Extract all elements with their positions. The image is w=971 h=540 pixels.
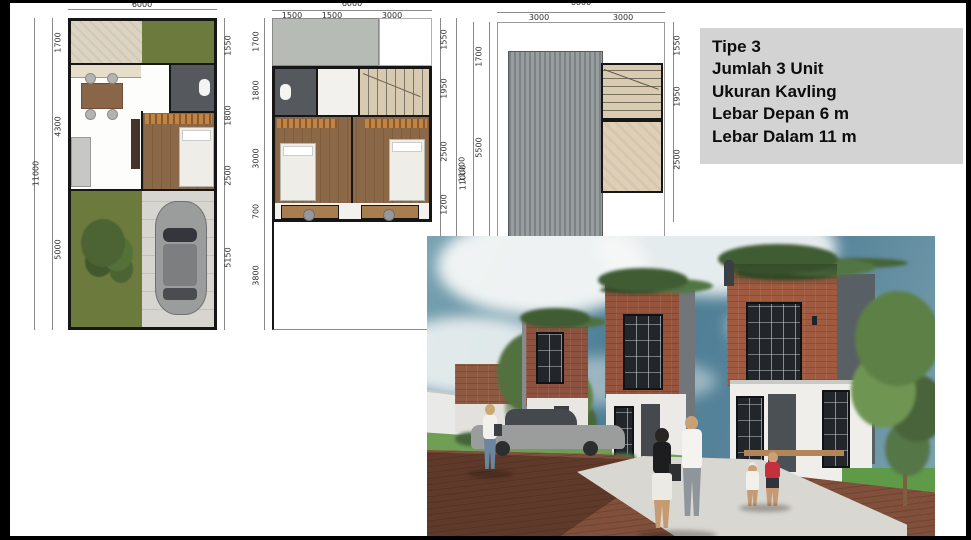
person-torso xyxy=(682,429,702,469)
dim-line xyxy=(52,18,53,330)
kitchen-counter xyxy=(71,65,141,78)
house-unit-3 xyxy=(720,250,880,490)
info-line-ukuran: Ukuran Kavling xyxy=(712,81,951,103)
open-void xyxy=(272,222,432,330)
dim-label: 3000 xyxy=(252,139,261,179)
dim-label: 1200 xyxy=(440,185,449,225)
child-red xyxy=(761,452,785,508)
dim-label: 2500 xyxy=(673,140,682,180)
tv-cabinet xyxy=(131,119,140,169)
letterbox-right xyxy=(966,0,971,540)
person-shorts xyxy=(766,478,779,488)
car-roof xyxy=(163,244,197,286)
pillow xyxy=(283,146,313,156)
plan-ground-floor xyxy=(68,18,217,330)
dim-label: 1950 xyxy=(440,69,449,109)
info-box: Tipe 3 Jumlah 3 Unit Ukuran Kavling Leba… xyxy=(700,28,963,164)
dim-label: 5500 xyxy=(475,128,484,168)
dim-label: 1800 xyxy=(252,71,261,111)
child-white xyxy=(743,462,763,508)
door-step xyxy=(744,450,844,456)
person-by-car xyxy=(479,404,503,474)
chair xyxy=(85,109,96,120)
dim-label: 1700 xyxy=(252,22,261,62)
chair xyxy=(85,73,96,84)
dim-label: 2500 xyxy=(224,156,233,196)
person-dress xyxy=(746,471,759,491)
person-head xyxy=(655,428,669,443)
window xyxy=(623,314,663,390)
person-skirt xyxy=(652,473,672,501)
wall-segment xyxy=(169,65,171,113)
dim-label: 700 xyxy=(252,192,261,232)
exterior-render xyxy=(427,236,935,537)
canopy xyxy=(730,380,872,384)
person-shadow xyxy=(739,504,791,512)
chair xyxy=(107,109,118,120)
letterbox-bottom xyxy=(0,536,971,540)
planter xyxy=(383,209,395,221)
dining-table xyxy=(81,83,123,109)
car-rear-window xyxy=(163,288,197,300)
window xyxy=(736,396,764,470)
roof-person xyxy=(724,260,734,286)
tree xyxy=(855,291,935,386)
person-woman xyxy=(645,428,681,533)
planter xyxy=(303,209,315,221)
dim-label: 11000 xyxy=(459,158,468,198)
chair xyxy=(107,73,118,84)
dim-label: 1500 xyxy=(312,11,352,20)
person-head xyxy=(485,404,495,415)
roof-overhang xyxy=(272,18,379,66)
info-line-lebar-dalam: Lebar Dalam 11 m xyxy=(712,126,951,148)
roof-outline xyxy=(379,18,432,66)
plan-second-floor xyxy=(272,18,432,330)
person-legs xyxy=(484,439,496,469)
info-line-jumlah: Jumlah 3 Unit xyxy=(712,58,951,80)
pillow xyxy=(182,130,211,141)
sofa xyxy=(71,137,91,187)
dim-label: 1700 xyxy=(475,37,484,77)
letterbox-left xyxy=(0,0,10,540)
dim-label: 5150 xyxy=(224,238,233,278)
dim-line xyxy=(68,9,217,10)
wardrobe xyxy=(365,119,427,128)
presentation-page: 6000 1700 4300 5000 11000 1550 1800 2500… xyxy=(0,0,971,540)
person-torso xyxy=(765,462,780,479)
garden-tree xyxy=(81,219,125,267)
person-head xyxy=(685,416,698,430)
toilet xyxy=(280,84,291,100)
dim-label: 2500 xyxy=(440,132,449,172)
window xyxy=(746,302,802,388)
person-bag xyxy=(494,424,502,436)
dim-label: 3000 xyxy=(509,13,569,22)
car-top-view xyxy=(155,201,207,315)
front-lawn xyxy=(142,21,214,63)
person-legs xyxy=(683,468,701,516)
dim-label: 1800 xyxy=(224,96,233,136)
dim-label: 1550 xyxy=(673,26,682,66)
dim-label: 3000 xyxy=(362,11,422,20)
hanging-vines xyxy=(727,264,837,286)
dim-line xyxy=(264,18,265,330)
car-windshield xyxy=(163,228,197,242)
dim-label: 1550 xyxy=(224,26,233,66)
roof-deck-room xyxy=(601,120,663,193)
dim-label: 1550 xyxy=(440,20,449,60)
wall-lamp xyxy=(812,316,817,325)
dim-label: 3000 xyxy=(593,13,653,22)
window xyxy=(822,390,850,468)
tree-trunk xyxy=(903,376,907,506)
window xyxy=(536,332,564,384)
dim-label: 11000 xyxy=(32,154,41,194)
dim-label: 1700 xyxy=(54,23,63,63)
rooftop-plants xyxy=(598,268,688,292)
person-shadow xyxy=(467,470,513,478)
toilet xyxy=(199,79,210,96)
porch-paving xyxy=(71,21,142,63)
person-legs xyxy=(654,500,670,528)
wardrobe xyxy=(145,114,212,124)
wall-segment xyxy=(351,117,353,203)
wardrobe xyxy=(277,119,337,128)
info-line-lebar-depan: Lebar Depan 6 m xyxy=(712,103,951,125)
rooftop-plants xyxy=(520,308,590,328)
dim-line xyxy=(456,18,457,236)
pillow xyxy=(392,142,422,152)
dim-line xyxy=(489,22,490,236)
dim-label: 4300 xyxy=(54,107,63,147)
wall-segment xyxy=(316,69,318,115)
person-man xyxy=(677,416,709,536)
info-line-tipe: Tipe 3 xyxy=(712,36,951,58)
car-wheel xyxy=(583,441,598,456)
dim-label: 5000 xyxy=(54,230,63,270)
dim-label: 1950 xyxy=(673,77,682,117)
dim-label: 3800 xyxy=(252,256,261,296)
dim-label: 1500 xyxy=(272,11,312,20)
floor-body xyxy=(272,66,432,222)
letterbox-top xyxy=(0,0,971,3)
